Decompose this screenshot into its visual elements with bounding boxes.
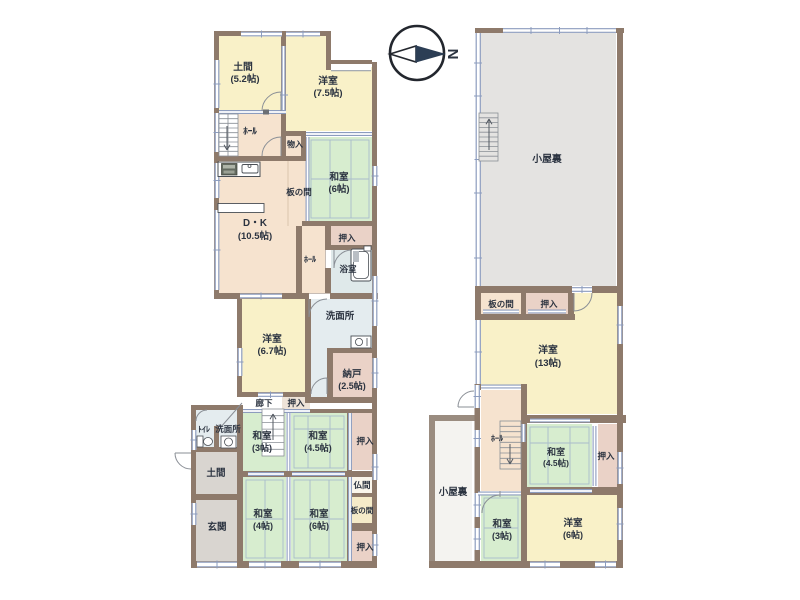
svg-text:土間: 土間 — [206, 467, 225, 479]
svg-text:ﾎｰﾙ: ﾎｰﾙ — [491, 434, 504, 443]
svg-text:ﾎｰﾙ: ﾎｰﾙ — [243, 126, 257, 136]
svg-text:D・K: D・K — [243, 218, 267, 229]
svg-text:(6帖): (6帖) — [328, 183, 349, 195]
svg-text:洋室: 洋室 — [318, 74, 338, 87]
svg-text:押入: 押入 — [338, 233, 356, 243]
svg-text:和室: 和室 — [328, 171, 349, 183]
svg-text:板の間: 板の間 — [351, 505, 374, 515]
svg-text:(6.7帖): (6.7帖) — [257, 345, 286, 357]
svg-text:(3帖): (3帖) — [492, 530, 512, 541]
svg-text:土間: 土間 — [233, 60, 253, 73]
svg-text:廊下: 廊下 — [255, 398, 273, 408]
svg-text:洋室: 洋室 — [563, 517, 583, 529]
svg-text:(6帖): (6帖) — [563, 529, 583, 540]
svg-text:押入: 押入 — [287, 398, 305, 408]
svg-text:洗面所: 洗面所 — [215, 424, 241, 434]
svg-text:小屋裏: 小屋裏 — [438, 486, 468, 498]
svg-text:洋室: 洋室 — [262, 332, 282, 345]
svg-text:小屋裏: 小屋裏 — [532, 152, 562, 165]
svg-text:(10.5帖): (10.5帖) — [238, 230, 272, 242]
svg-text:物入: 物入 — [287, 139, 303, 149]
svg-text:(5.2帖): (5.2帖) — [230, 73, 259, 85]
svg-text:板の間: 板の間 — [488, 299, 514, 309]
svg-text:和室: 和室 — [546, 446, 565, 457]
svg-text:洗面所: 洗面所 — [326, 310, 355, 322]
svg-text:(3帖): (3帖) — [252, 442, 272, 453]
svg-text:押入: 押入 — [356, 542, 374, 552]
svg-text:和室: 和室 — [308, 508, 329, 520]
svg-text:和室: 和室 — [251, 430, 272, 442]
svg-text:浴室: 浴室 — [339, 264, 357, 274]
svg-text:(2.5帖): (2.5帖) — [338, 380, 366, 391]
svg-text:N: N — [444, 49, 461, 60]
svg-text:玄関: 玄関 — [207, 521, 226, 533]
svg-text:和室: 和室 — [252, 508, 273, 520]
svg-text:(13帖): (13帖) — [535, 357, 561, 369]
svg-text:和室: 和室 — [491, 518, 512, 530]
svg-text:仏間: 仏間 — [352, 480, 370, 490]
svg-text:(4.5帖): (4.5帖) — [543, 458, 569, 468]
svg-text:(4.5帖): (4.5帖) — [304, 442, 332, 453]
svg-text:ﾄｲﾚ: ﾄｲﾚ — [198, 425, 210, 434]
svg-text:押入: 押入 — [540, 299, 558, 309]
svg-text:押入: 押入 — [597, 451, 615, 461]
svg-text:和室: 和室 — [307, 430, 328, 442]
svg-text:納戸: 納戸 — [342, 368, 362, 380]
svg-text:板の間: 板の間 — [286, 187, 312, 197]
svg-text:押入: 押入 — [356, 436, 374, 446]
svg-text:(6帖): (6帖) — [309, 520, 329, 531]
svg-text:洋室: 洋室 — [538, 343, 558, 356]
svg-text:(7.5帖): (7.5帖) — [313, 87, 342, 99]
svg-text:(4帖): (4帖) — [253, 520, 273, 531]
svg-text:ﾎｰﾙ: ﾎｰﾙ — [304, 255, 317, 264]
